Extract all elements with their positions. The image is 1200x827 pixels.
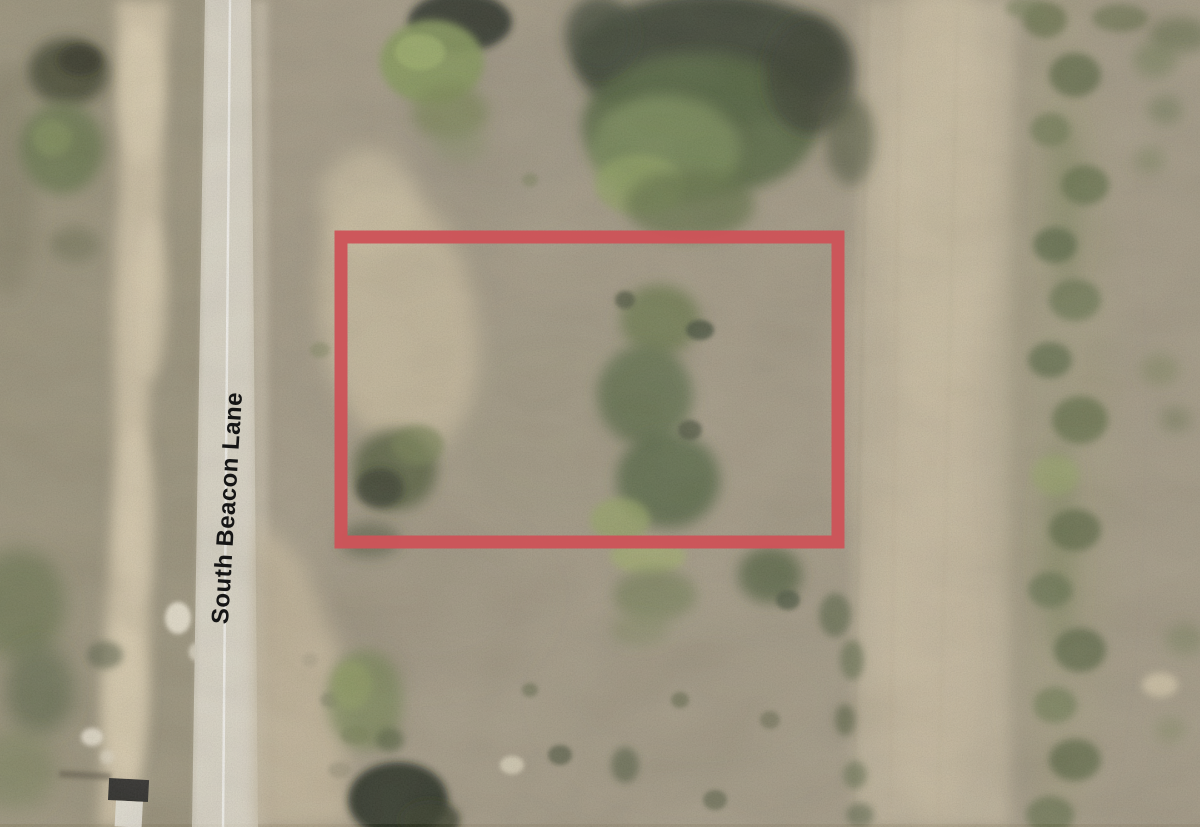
aerial-map-view: South Beacon Lane: [0, 0, 1200, 827]
texture-noise: [0, 0, 1200, 827]
satellite-imagery: [0, 0, 1200, 827]
photo-texture-overlay: [0, 0, 1200, 827]
